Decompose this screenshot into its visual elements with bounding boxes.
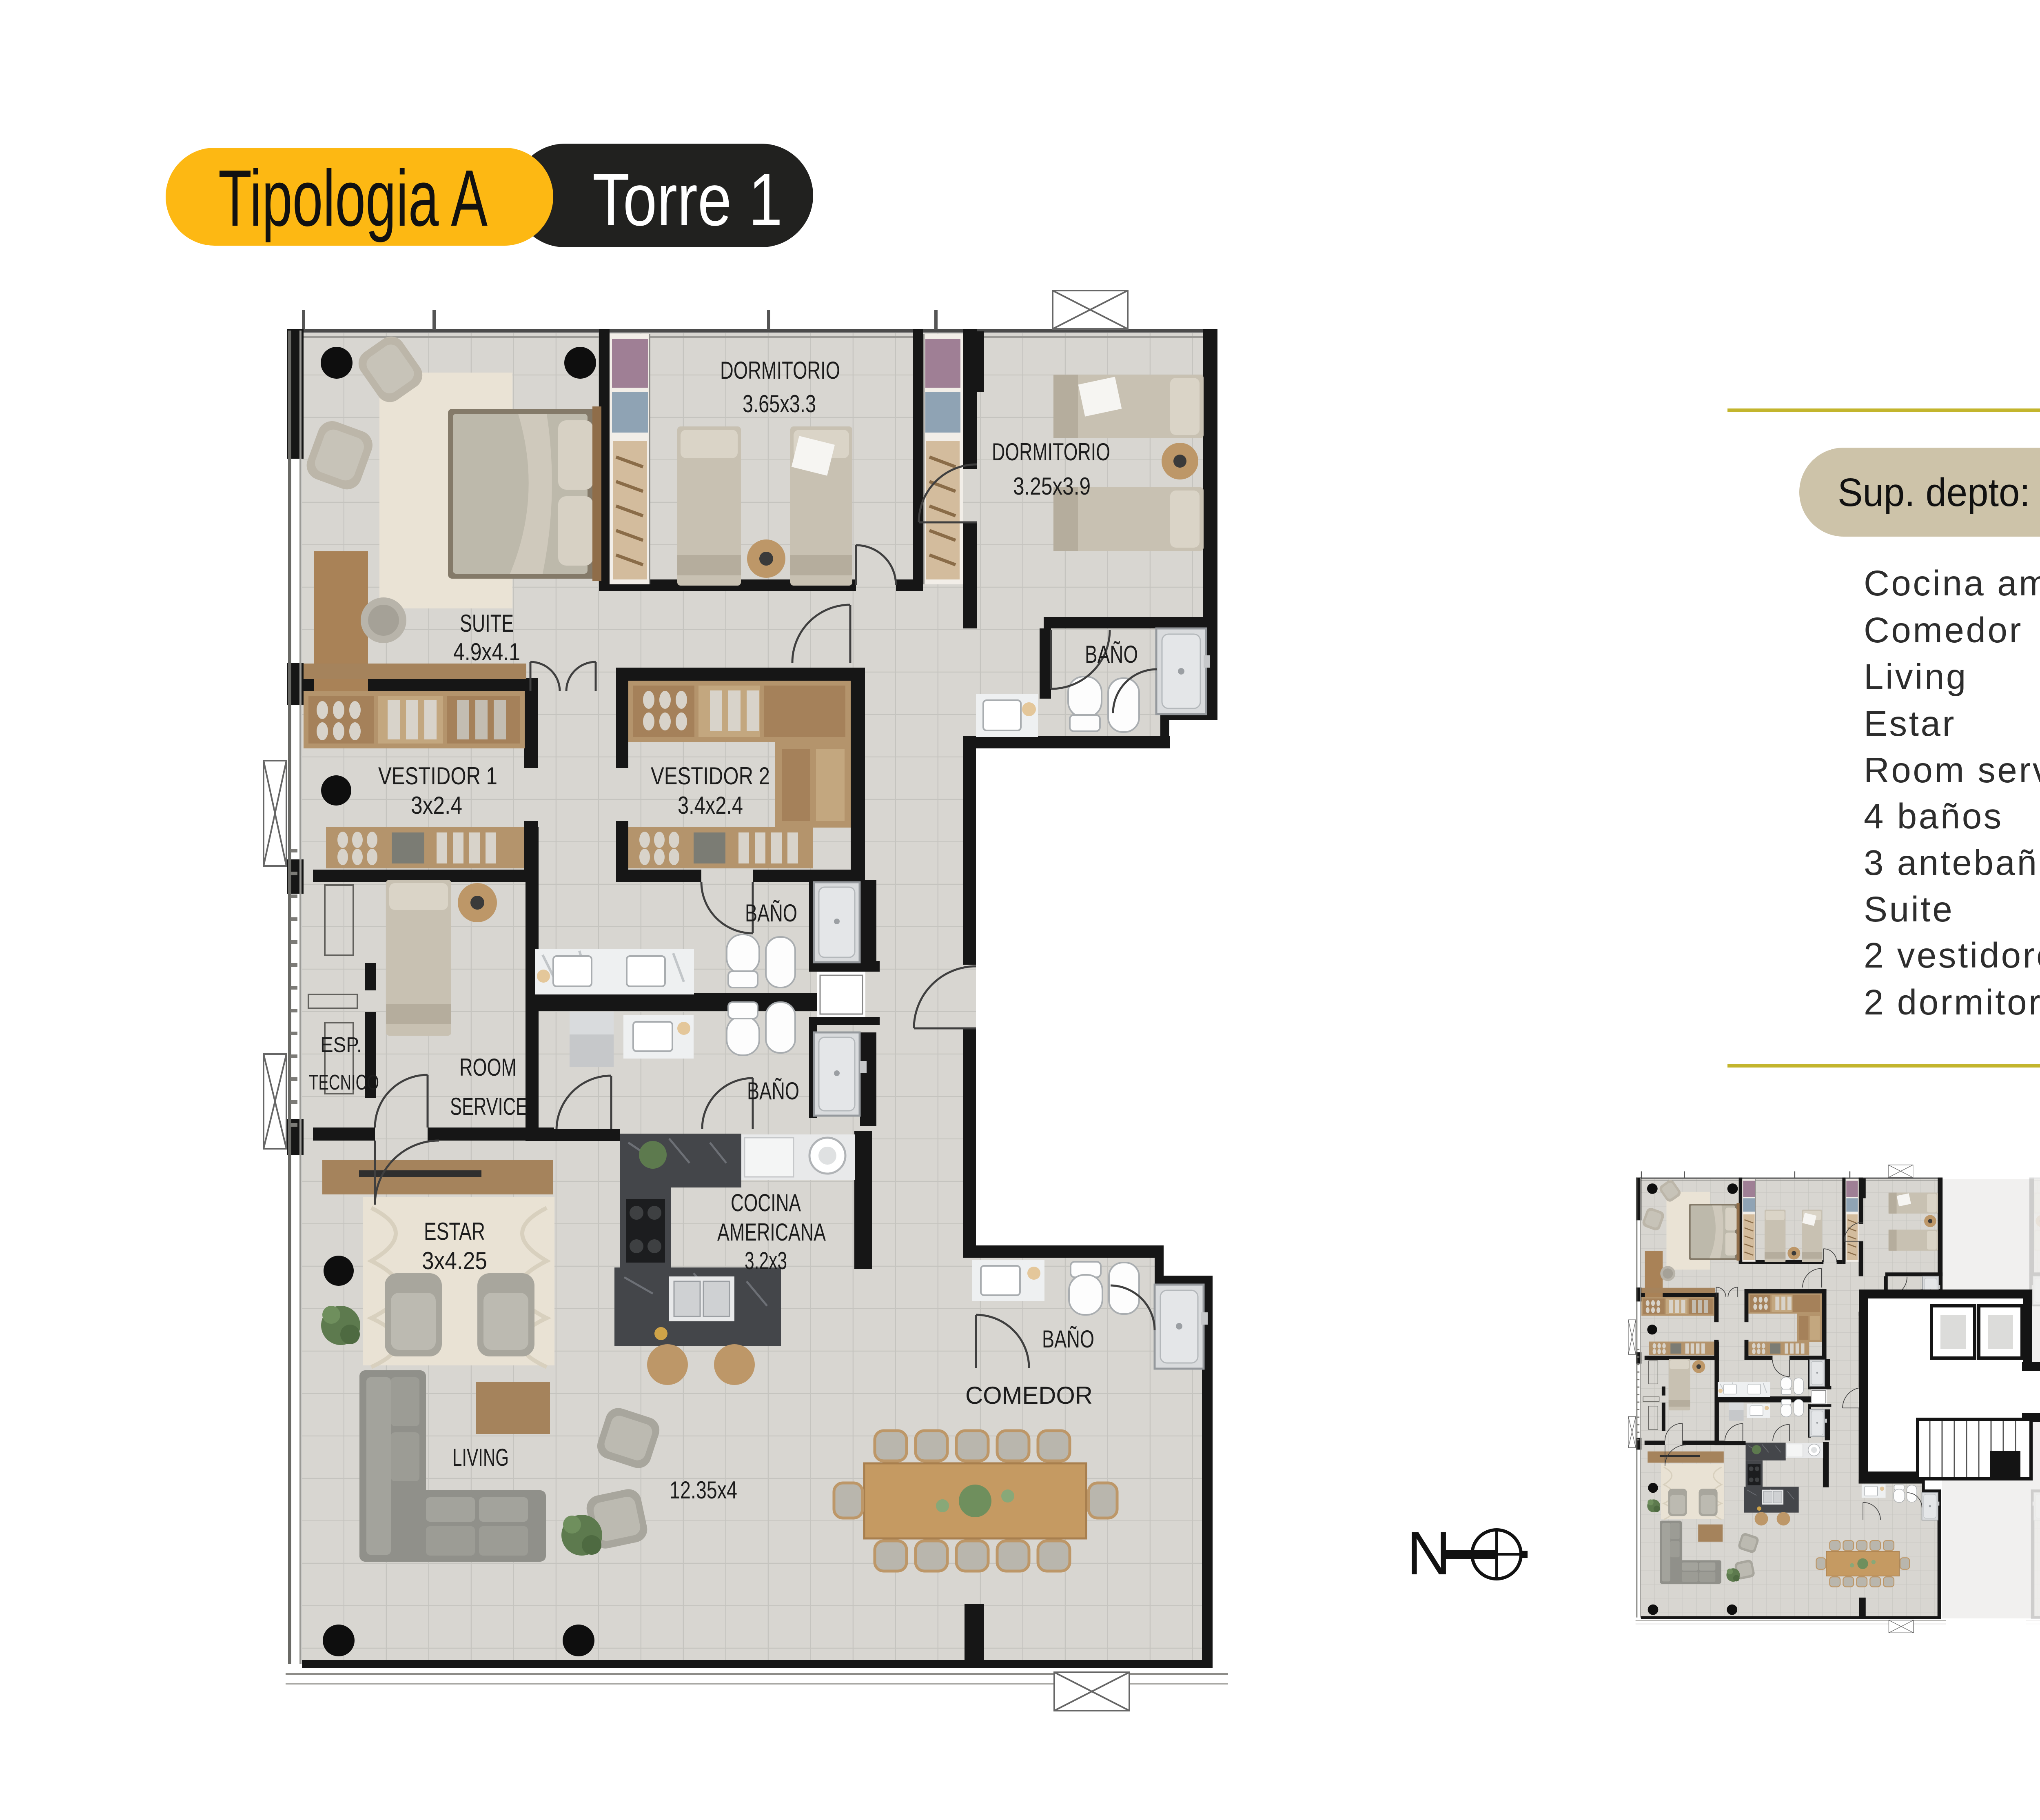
svg-text:2 dormitorios: 2 dormitorios [1864,983,2040,1022]
svg-text:SERVICE: SERVICE [450,1093,528,1120]
svg-text:Tipologia A: Tipologia A [218,153,488,243]
svg-text:Living: Living [1864,657,1968,697]
svg-text:Sup. depto: 209.88m2: Sup. depto: 209.88m2 [1838,470,2040,515]
svg-text:TECNICO: TECNICO [309,1071,379,1094]
svg-text:Cocina americana: Cocina americana [1864,564,2040,603]
svg-text:DORMITORIO: DORMITORIO [992,438,1110,466]
svg-text:SUITE: SUITE [460,610,514,637]
svg-text:3 antebaños: 3 antebaños [1864,843,2040,883]
svg-text:BAÑO: BAÑO [747,1077,799,1105]
svg-text:ROOM: ROOM [459,1054,517,1081]
svg-text:Comedor: Comedor [1864,610,2023,650]
svg-text:Estar: Estar [1864,704,1956,744]
svg-text:3.4x2.4: 3.4x2.4 [678,792,743,819]
svg-text:ESP.: ESP. [320,1033,362,1057]
svg-text:AMERICANA: AMERICANA [717,1219,826,1246]
svg-text:BAÑO: BAÑO [745,899,797,927]
svg-text:BAÑO: BAÑO [1042,1325,1094,1353]
svg-text:3x4.25: 3x4.25 [422,1247,487,1274]
svg-text:VESTIDOR 1: VESTIDOR 1 [378,762,497,790]
svg-text:BAÑO: BAÑO [1085,641,1138,668]
svg-text:Torre 1: Torre 1 [592,158,783,241]
svg-text:4 baños: 4 baños [1864,797,2003,836]
svg-text:VESTIDOR 2: VESTIDOR 2 [651,762,770,790]
svg-text:3.65x3.3: 3.65x3.3 [743,390,816,417]
svg-text:Room service: Room service [1864,750,2040,790]
svg-text:N: N [1407,1519,1451,1587]
svg-text:3.25x3.9: 3.25x3.9 [1013,473,1091,500]
svg-text:4.9x4.1: 4.9x4.1 [453,638,520,666]
svg-text:2 vestidores: 2 vestidores [1864,936,2040,975]
svg-text:DORMITORIO: DORMITORIO [720,357,840,384]
svg-text:Suite: Suite [1864,890,1954,929]
svg-text:COMEDOR: COMEDOR [965,1382,1093,1409]
svg-text:3x2.4: 3x2.4 [411,792,462,819]
svg-text:COCINA: COCINA [731,1189,801,1216]
svg-text:LIVING: LIVING [452,1444,509,1471]
svg-text:ESTAR: ESTAR [424,1218,485,1245]
svg-text:12.35x4: 12.35x4 [670,1476,737,1504]
svg-text:3.2x3: 3.2x3 [745,1247,787,1274]
